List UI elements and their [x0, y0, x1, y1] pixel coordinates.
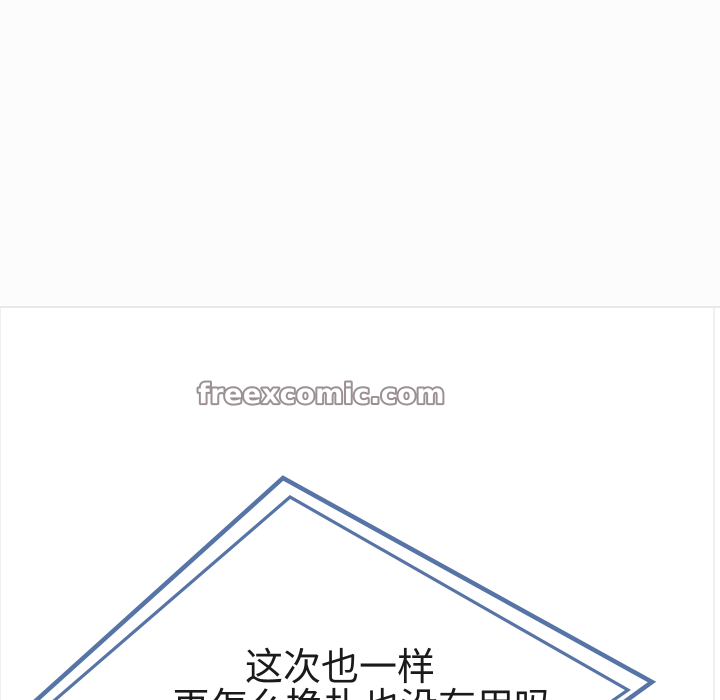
dialogue-line-2-clipped: 再怎么挣扎也没有用吗: [172, 689, 552, 700]
comic-panel: [0, 306, 720, 700]
previous-image-blank-area: [0, 0, 720, 306]
panel-right-border: [713, 308, 715, 700]
comic-reader-page: freexcomic.com 这次也一样 再怎么挣扎也没有用吗: [0, 0, 720, 700]
panel-left-border: [0, 308, 1, 700]
dialogue-line-1: 这次也一样: [245, 649, 435, 687]
